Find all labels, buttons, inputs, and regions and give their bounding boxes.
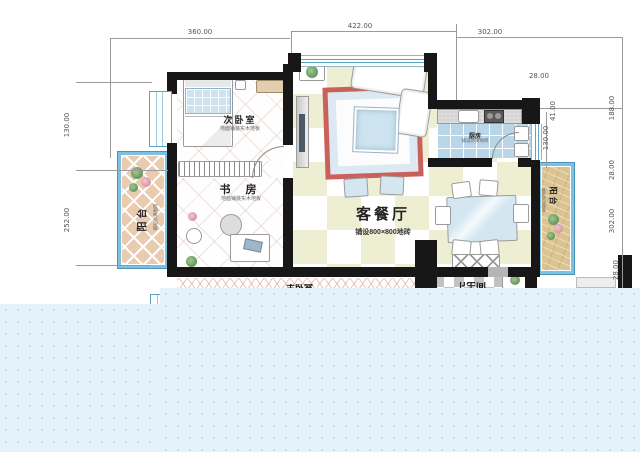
dining-table — [446, 195, 518, 243]
armchair — [343, 177, 368, 198]
living-top-window — [301, 55, 424, 67]
vase-icon — [188, 212, 197, 221]
dim-label-top-left: 360.00 — [165, 28, 235, 36]
dim-label-inner-height: 130.00 — [542, 121, 550, 155]
dim-extension — [76, 82, 152, 83]
side-table — [186, 228, 202, 244]
dim-extension — [110, 38, 111, 158]
burner-icon — [487, 113, 493, 119]
dim-extension — [291, 31, 292, 53]
burner-icon — [495, 113, 501, 119]
wall-stub-middle — [415, 240, 437, 292]
wall-bedroom-right-upper — [283, 64, 293, 145]
dining-chair — [513, 204, 529, 223]
wall-kitchen-right-upper — [531, 109, 540, 124]
bedroom-window — [149, 91, 172, 147]
plant-icon — [129, 183, 138, 192]
desk-chair — [220, 214, 242, 236]
water-area-left — [0, 304, 161, 452]
wall-kitchen-bottom-left — [428, 158, 492, 167]
balcony-right-sublabel: 铺贴防滑地砖 — [540, 178, 546, 222]
wall-kitchen-bottom-right — [518, 158, 531, 167]
dim-extension — [456, 24, 457, 100]
wardrobe — [256, 80, 286, 93]
plant-icon — [306, 66, 318, 78]
kitchen-sublabel: 铺设防滑地砖 — [448, 138, 502, 144]
dim-extension — [76, 170, 168, 171]
kitchen-counter — [437, 109, 522, 124]
bedroom2-sublabel: 地面铺装实木地板 — [205, 125, 275, 132]
bed-pillow — [185, 80, 231, 87]
balcony-right-label: 阳台 — [548, 177, 559, 217]
fixture-block — [576, 277, 616, 288]
dim-label-right-upper: 188.00 — [608, 91, 616, 125]
wall-stub-right — [525, 267, 537, 290]
dim-label-right-bottom: 28.00 — [612, 258, 620, 282]
dining-chair — [478, 179, 498, 197]
kitchen-sink — [458, 110, 479, 123]
flower-icon — [554, 224, 563, 233]
kitchen-window — [531, 124, 542, 160]
wall-kitchen-top — [437, 100, 522, 109]
wall-left-lower — [167, 143, 177, 277]
dining-chair — [435, 206, 451, 225]
dim-label-top-right: 302.00 — [462, 28, 518, 36]
armchair — [380, 175, 405, 195]
flower-icon — [141, 177, 151, 187]
tv-screen — [299, 114, 305, 152]
living-dining-label: 客餐厅 — [337, 203, 429, 224]
dim-label-left-lower: 252.00 — [63, 203, 71, 237]
dim-line-top-left — [110, 38, 290, 39]
plant-icon — [186, 256, 197, 267]
wall-right — [531, 160, 540, 277]
balcony-left-sublabel: 铺贴防滑地砖 — [153, 193, 159, 241]
plant-icon — [547, 232, 555, 240]
floor-plan-canvas: 360.00 422.00 302.00 130.00 252.00 28.00… — [0, 0, 640, 452]
dim-label-inner-width: 41.00 — [549, 98, 557, 124]
dim-line-top-right — [457, 37, 622, 38]
study-sublabel: 地面铺装实木地板 — [203, 195, 279, 202]
above-kitchen-mask — [437, 60, 531, 100]
wall-bedroom-top — [167, 72, 293, 80]
entry-door — [488, 267, 508, 277]
wall-bottom — [167, 267, 537, 277]
dim-label-top-middle: 422.00 — [332, 22, 388, 30]
dim-label-left-upper: 130.00 — [63, 108, 71, 142]
wall-corner-far-right — [618, 255, 632, 289]
coffee-table — [353, 107, 399, 153]
dim-line-top-middle — [292, 31, 456, 32]
dim-label-right-top: 28.00 — [526, 72, 552, 80]
bed-cover — [185, 88, 231, 114]
dim-chain-right — [622, 37, 623, 290]
plant-icon — [131, 167, 143, 179]
wall-study-right — [283, 178, 293, 277]
dim-label-right-small: 28.00 — [608, 158, 616, 182]
dining-chair — [451, 181, 472, 199]
dim-label-right-middle: 302.00 — [608, 203, 616, 239]
water-area — [160, 288, 640, 452]
living-dining-sublabel: 铺设800×800地砖 — [330, 227, 436, 237]
balcony-left-label: 阳台 — [134, 197, 149, 241]
nightstand — [235, 80, 246, 90]
bookshelf-divider — [178, 161, 262, 177]
dim-extension — [76, 265, 150, 266]
wall-kitchen-left — [428, 64, 437, 109]
